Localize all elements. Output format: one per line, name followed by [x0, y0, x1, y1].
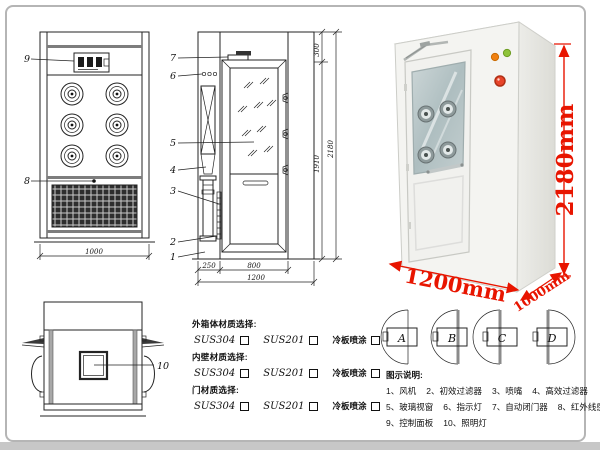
svg-text:5: 5: [170, 138, 176, 149]
legend-item-lighting: 10、照明灯: [443, 417, 486, 429]
svg-text:1000: 1000: [85, 248, 103, 256]
checkbox-sus304[interactable]: [240, 336, 249, 345]
product-photo: 2180mm 1200mm 1000mm: [368, 14, 583, 314]
orange-indicator-light: [491, 53, 498, 60]
door-option-c[interactable]: C: [473, 310, 517, 364]
legend-row-1: 1、风机 2、初效过滤器 3、喷嘴 4、高效过滤器: [386, 385, 591, 397]
option-label: SUS304: [194, 335, 235, 346]
svg-text:4: 4: [169, 165, 176, 176]
front-nozzles: [61, 83, 128, 167]
callout-9: 9: [24, 54, 74, 65]
hepa-filter-graphic: [201, 86, 215, 174]
callout-10: 10: [94, 361, 169, 372]
front-elevation-drawing: 1000 9 8: [22, 24, 172, 284]
legend-item-glass-window: 5、玻璃视窗: [386, 401, 433, 413]
svg-text:D: D: [547, 332, 557, 345]
side-callouts: 7 6 5 4 3 2 1: [169, 53, 254, 263]
legend-item-nozzle: 3、喷嘴: [492, 385, 522, 397]
svg-text:1910: 1910: [313, 155, 321, 173]
legend-item-infrared-sensor: 8、红外线感应器: [558, 401, 600, 413]
svg-text:A: A: [397, 332, 406, 345]
legend-item-door-closer: 7、自动闭门器: [492, 401, 548, 413]
legend-item-indicator-light: 6、指示灯: [443, 401, 482, 413]
legend-title: 图示说明:: [386, 369, 591, 381]
outer-box-material-title: 外箱体材质选择:: [192, 318, 377, 330]
door-option-d[interactable]: D: [533, 310, 575, 364]
control-panel-graphic: [74, 53, 109, 72]
checkbox-sus201[interactable]: [309, 336, 318, 345]
bottom-border-strip: [0, 442, 600, 450]
svg-text:6: 6: [170, 71, 176, 82]
door-closer-graphic: [228, 51, 251, 60]
fan-graphic: [200, 176, 216, 241]
inner-wall-material-title: 内壁材质选择:: [192, 351, 377, 363]
height-dimensions: 300 1910 2180: [313, 29, 342, 262]
front-width-dimension: 1000: [37, 244, 152, 260]
door-option-a[interactable]: A: [381, 310, 417, 364]
legend-row-2: 5、玻璃视窗 6、指示灯 7、自动闭门器 8、红外线感应器: [386, 401, 591, 413]
door-graphic: [222, 60, 286, 252]
option-label: SUS201: [263, 368, 304, 379]
legend-item-primary-filter: 2、初效过滤器: [426, 385, 482, 397]
option-label: SUS201: [263, 401, 304, 412]
svg-text:C: C: [498, 332, 507, 345]
legend-item-fan: 1、风机: [386, 385, 416, 397]
side-section-drawing: 7 6 5 4 3 2 1 300 1910 2180: [164, 24, 364, 292]
outer-box-material-options: SUS304 SUS201 冷板喷涂: [194, 334, 377, 346]
checkbox-coldplate[interactable]: [371, 369, 380, 378]
cabinet-door: [404, 50, 471, 262]
door-material-title: 门材质选择:: [192, 384, 377, 396]
return-air-grille: [52, 185, 137, 227]
plan-outline: [44, 302, 142, 410]
legend-row-3: 9、控制面板 10、照明灯: [386, 417, 591, 429]
plan-view-drawing: 10: [14, 292, 189, 437]
checkbox-sus201[interactable]: [309, 369, 318, 378]
svg-text:1200: 1200: [247, 274, 265, 282]
svg-text:8: 8: [24, 176, 30, 187]
option-label: 冷板喷涂: [332, 334, 366, 346]
checkbox-sus304[interactable]: [240, 369, 249, 378]
material-selection-block: 外箱体材质选择: SUS304 SUS201 冷板喷涂 内壁材质选择: SUS3…: [192, 313, 377, 414]
door-option-b[interactable]: B: [431, 310, 467, 364]
checkbox-coldplate[interactable]: [371, 402, 380, 411]
front-top-trim: [47, 45, 142, 48]
option-label: 冷板喷涂: [332, 400, 366, 412]
svg-text:1: 1: [170, 252, 176, 263]
checkbox-sus304[interactable]: [240, 402, 249, 411]
door-swing-options: A B C D: [378, 306, 578, 368]
option-label: SUS304: [194, 368, 235, 379]
svg-text:B: B: [447, 332, 456, 345]
svg-text:3: 3: [170, 186, 176, 197]
legend-block: 图示说明: 1、风机 2、初效过滤器 3、喷嘴 4、高效过滤器 5、玻璃视窗 6…: [386, 369, 591, 433]
svg-text:7: 7: [170, 53, 177, 64]
ceiling-light-graphic: [80, 352, 107, 379]
green-indicator-light: [503, 49, 510, 56]
option-label: SUS304: [194, 401, 235, 412]
inner-wall-material-options: SUS304 SUS201 冷板喷涂: [194, 367, 377, 379]
svg-text:250: 250: [201, 262, 216, 270]
door-vent-slot: [243, 181, 268, 185]
svg-text:300: 300: [313, 43, 321, 57]
red-button[interactable]: [495, 76, 505, 86]
air-shower-spec-sheet: 1000 9 8: [0, 0, 600, 450]
legend-item-hepa-filter: 4、高效过滤器: [532, 385, 588, 397]
svg-text:10: 10: [157, 361, 169, 372]
svg-text:2: 2: [169, 237, 176, 248]
option-label: SUS201: [263, 335, 304, 346]
width-dimensions: 250 800 1200: [195, 261, 317, 286]
checkbox-sus201[interactable]: [309, 402, 318, 411]
legend-item-control-panel: 9、控制面板: [386, 417, 433, 429]
indicator-lights-graphic: [202, 72, 216, 75]
height-dimension-label: 2180mm: [552, 104, 579, 217]
svg-text:9: 9: [24, 54, 30, 65]
left-fittings: [22, 336, 44, 397]
option-label: 冷板喷涂: [332, 367, 366, 379]
svg-text:800: 800: [247, 262, 261, 270]
glass-hatch: [238, 78, 276, 156]
door-material-options: SUS304 SUS201 冷板喷涂: [194, 400, 377, 412]
svg-text:2180: 2180: [327, 140, 335, 159]
